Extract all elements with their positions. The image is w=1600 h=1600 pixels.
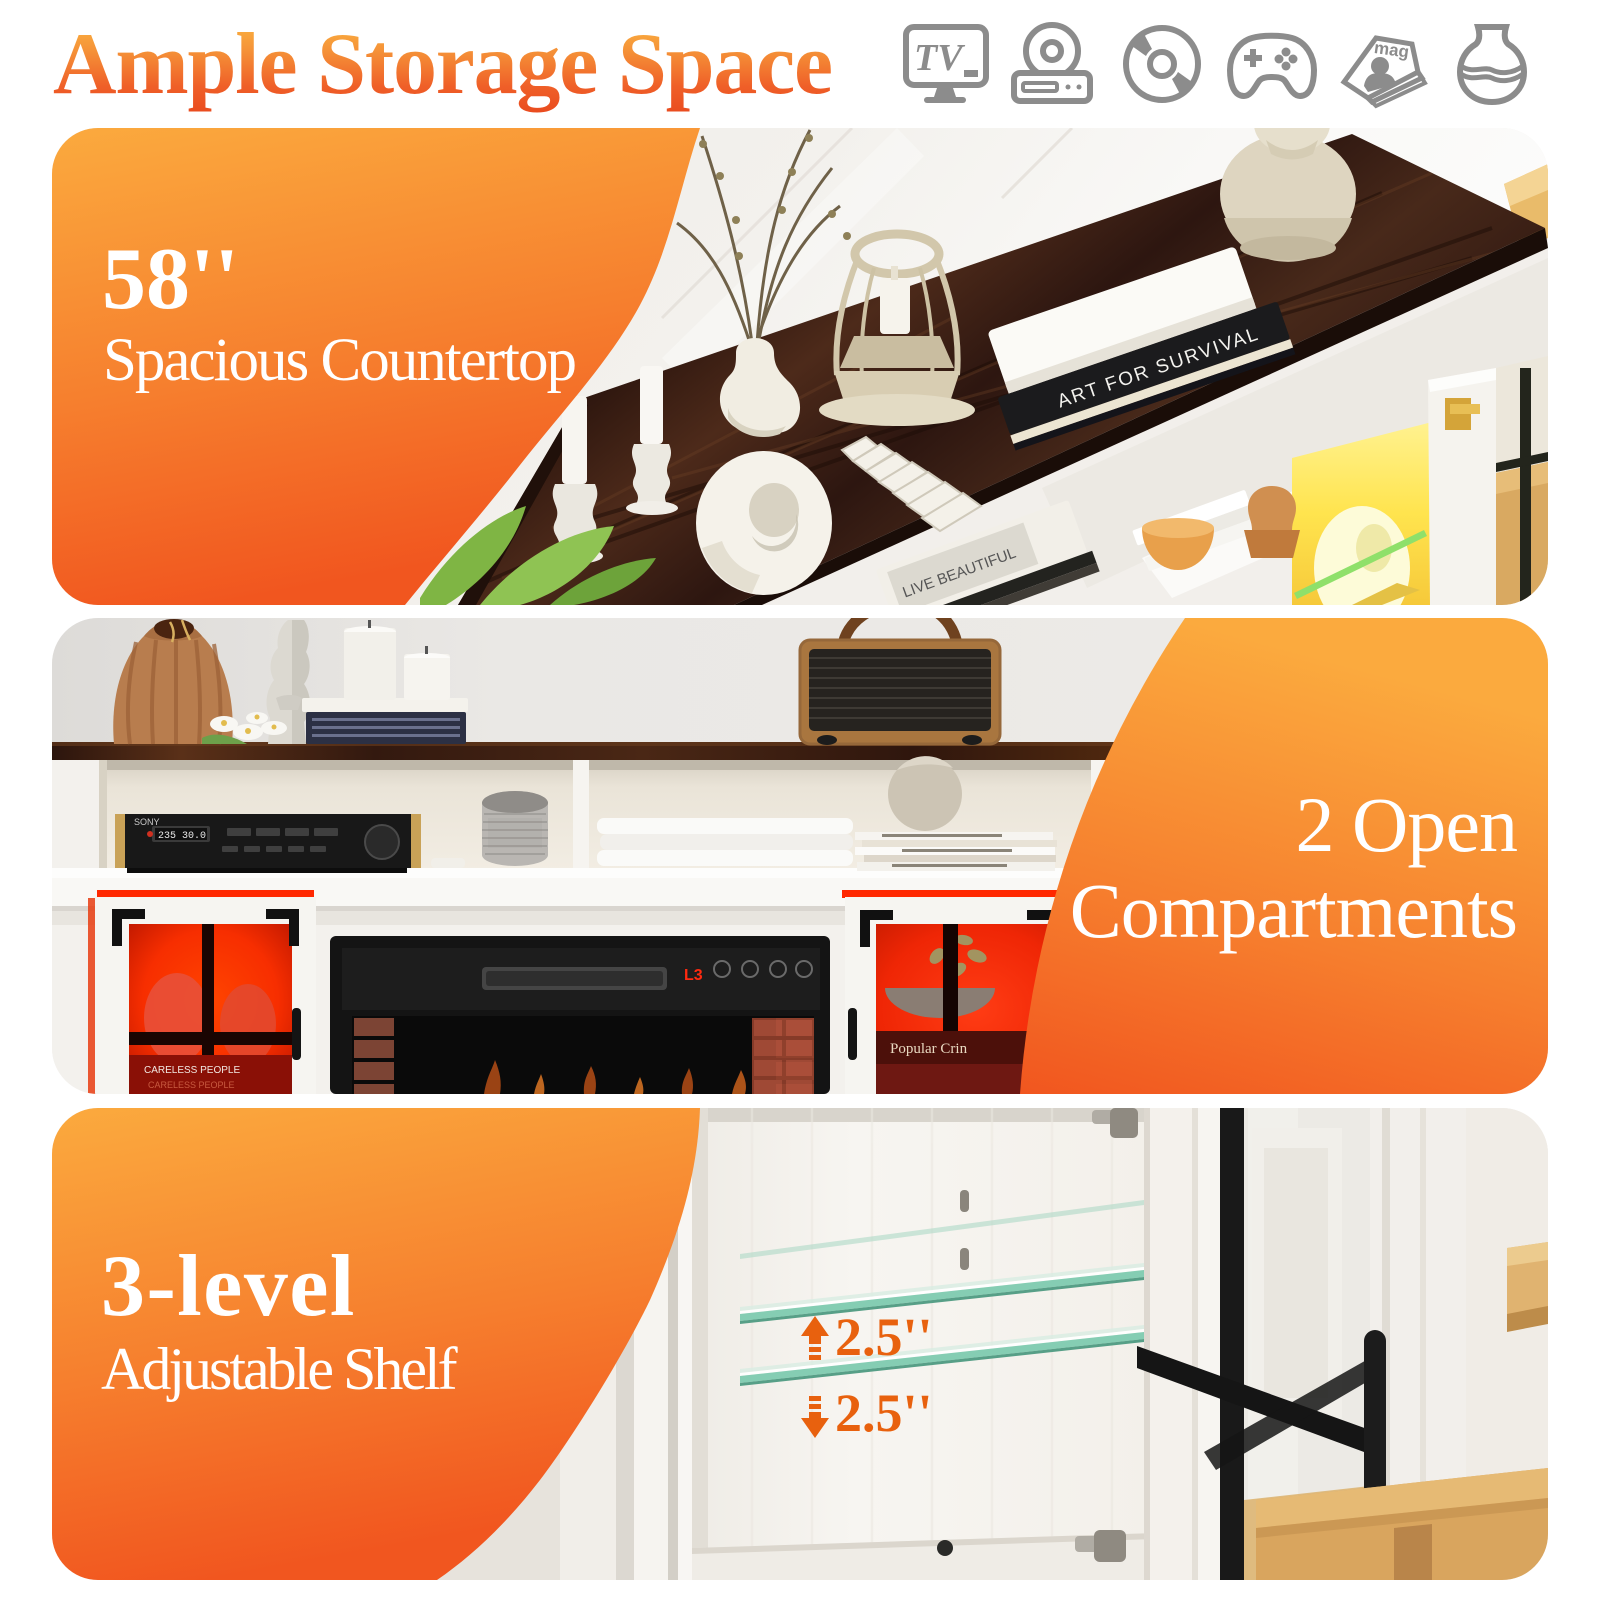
svg-text:TV: TV [914,37,965,79]
